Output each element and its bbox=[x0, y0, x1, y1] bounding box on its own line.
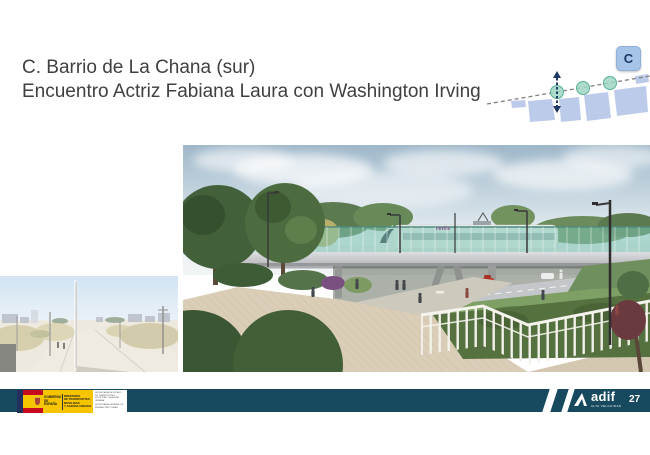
coat-of-arms-icon bbox=[35, 397, 40, 405]
current-state-photo bbox=[0, 276, 178, 372]
title-line-1: C. Barrio de La Chana (sur) bbox=[22, 56, 481, 80]
crossing-marker bbox=[604, 77, 617, 90]
gobierno-line2: DE ESPAÑA bbox=[44, 400, 61, 407]
secretariat-label-block: SECRETARÍA DE ESTADO DE TRANSPORTES, MOV… bbox=[93, 390, 127, 413]
white-van bbox=[541, 273, 554, 279]
project-render: renfe bbox=[183, 145, 650, 372]
adif-wordmark: adif bbox=[591, 391, 621, 403]
gobierno-espana-logo: GOBIERNO DE ESPAÑA MINISTERIO DE TRANSPO… bbox=[17, 390, 93, 413]
presentation-slide: C. Barrio de La Chana (sur) Encuentro Ac… bbox=[0, 0, 650, 455]
statue bbox=[560, 273, 563, 279]
adif-logo-icon bbox=[574, 393, 588, 407]
ministerio-line3: Y AGENDA URBANA bbox=[64, 405, 92, 408]
bench bbox=[436, 291, 444, 294]
city-blocks bbox=[511, 74, 649, 122]
adif-logo: adif ALTA VELOCIDAD bbox=[574, 391, 621, 408]
ministry-label-block: GOBIERNO DE ESPAÑA MINISTERIO DE TRANSPO… bbox=[43, 390, 93, 413]
train-renfe-label: renfe bbox=[436, 226, 450, 232]
render-graphic bbox=[183, 145, 650, 372]
location-map: C bbox=[484, 44, 650, 138]
street-photo-graphic bbox=[0, 276, 178, 372]
title-line-2: Encuentro Actriz Fabiana Laura con Washi… bbox=[22, 80, 481, 104]
page-number: 27 bbox=[629, 394, 640, 405]
secretaria-block1: SECRETARÍA DE ESTADO DE TRANSPORTES, MOV… bbox=[95, 392, 125, 402]
map-section-badge: C bbox=[616, 46, 641, 71]
adif-sublabel: ALTA VELOCIDAD bbox=[591, 404, 621, 408]
page-title: C. Barrio de La Chana (sur) Encuentro Ac… bbox=[22, 56, 481, 104]
spain-flag-icon bbox=[23, 390, 43, 413]
crossing-marker bbox=[577, 82, 590, 95]
secretaria-block2: SECRETARÍA GENERAL DE INFRAESTRUCTURAS bbox=[95, 404, 125, 409]
